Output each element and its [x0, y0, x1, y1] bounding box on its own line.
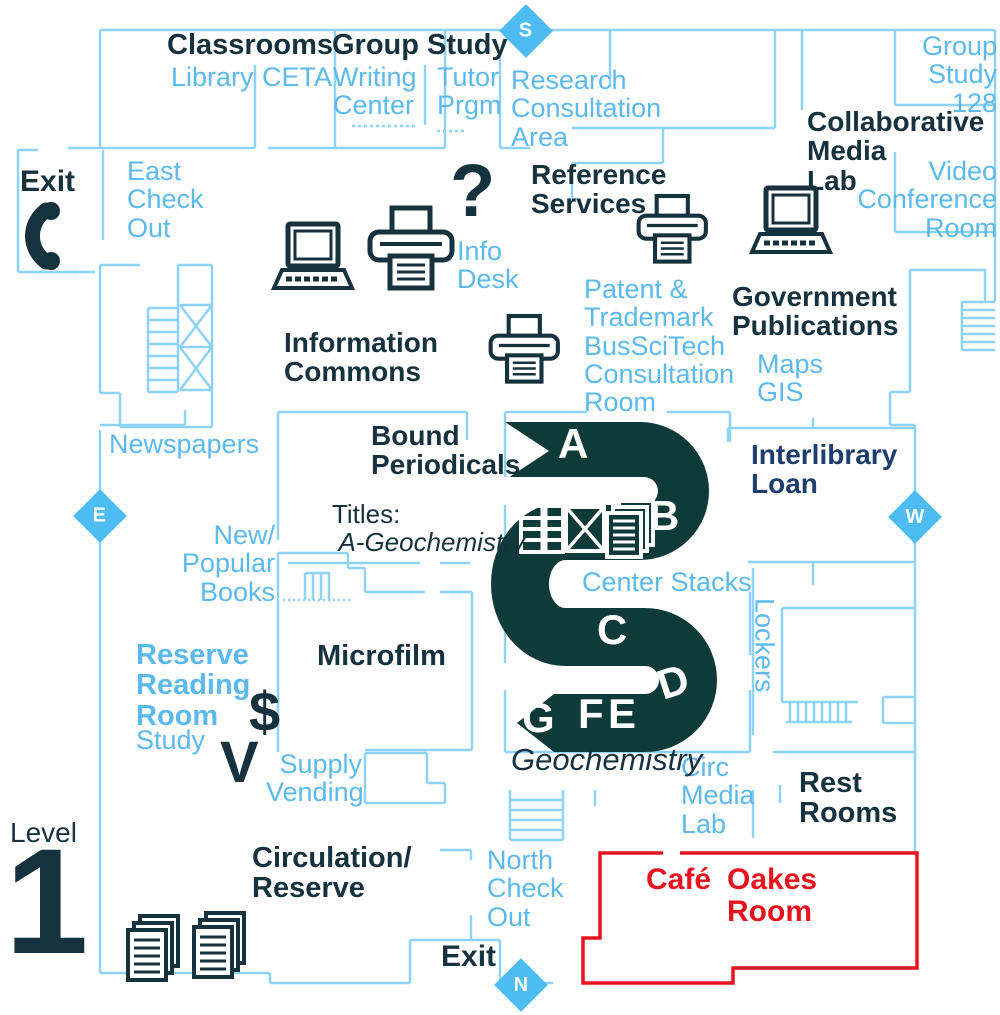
room-label-rest-rooms: RestRooms: [799, 768, 897, 829]
room-label-info-desk: InfoDesk: [457, 237, 519, 294]
room-label-center-stacks: Center Stacks: [582, 568, 752, 596]
printer-icon: [491, 316, 558, 382]
library-floor-plan: S E W N Classrooms Library CETA Group St…: [0, 0, 1000, 1015]
stack-letter-g: G: [522, 694, 555, 742]
room-label-reference-services: ReferenceServices: [531, 160, 666, 219]
compass-west-label: W: [906, 505, 925, 528]
stacks-range-end: Geochemistry: [511, 744, 702, 777]
room-label-study: Study: [136, 726, 205, 754]
room-label-tutor-prgm: TutorPrgm: [437, 63, 502, 120]
stacked-papers-icon: [128, 916, 178, 980]
stack-letter-c: C: [597, 606, 627, 654]
room-label-research-consultation: ResearchConsultationArea: [511, 66, 661, 151]
room-label-maps-gis: MapsGIS: [757, 350, 823, 407]
room-label-writing-center: WritingCenter: [333, 63, 417, 120]
room-label-oakes-room: OakesRoom: [727, 864, 817, 927]
room-label-interlibrary-loan: InterlibraryLoan: [751, 440, 897, 499]
room-label-bound-periodicals: BoundPeriodicals: [371, 421, 520, 480]
level-number: 1: [5, 826, 88, 976]
room-label-video-conference: VideoConferenceRoom: [855, 157, 997, 242]
computer-icon: [274, 224, 352, 288]
room-label-classrooms: Classrooms: [167, 30, 333, 60]
compass-north-label: N: [514, 973, 528, 996]
titles-prefix: Titles:: [332, 499, 400, 529]
room-label-cafe: Café: [646, 864, 711, 896]
bound-periodicals-titles: Titles: A-Geochemistry: [318, 474, 525, 556]
room-label-government-publications: GovernmentPublications: [732, 282, 898, 341]
room-label-newspapers: Newspapers: [109, 430, 259, 458]
stack-letter-b: B: [649, 492, 679, 540]
computer-icon: [752, 188, 830, 252]
label-exit-east: Exit: [20, 166, 75, 198]
compass-south-label: S: [519, 20, 532, 43]
info-desk-question-mark: ?: [450, 152, 495, 230]
printer-icon: [370, 208, 452, 288]
room-label-reserve-reading-room: ReserveReadingRoom: [136, 640, 250, 731]
room-label-north-check-out: NorthCheckOut: [487, 846, 564, 931]
stack-letter-a: A: [558, 420, 588, 468]
stacked-papers-icon: [607, 501, 653, 557]
stacked-papers-icon: [194, 913, 244, 977]
stack-letter-e: E: [608, 690, 636, 738]
room-label-library: Library: [171, 63, 254, 91]
room-label-group-study-128: GroupStudy128: [892, 32, 997, 117]
label-exit-north: Exit: [441, 941, 496, 973]
room-label-group-study: Group Study: [332, 30, 508, 60]
phone-icon: [33, 202, 61, 270]
room-label-circulation-reserve: Circulation/Reserve: [252, 843, 412, 904]
room-label-microfilm: Microfilm: [317, 641, 446, 671]
titles-range: A-Geochemistry: [338, 527, 524, 557]
vending-symbol: V: [220, 733, 259, 794]
room-label-lockers: Lockers: [750, 598, 778, 693]
room-label-east-check-out: EastCheckOut: [127, 157, 204, 242]
room-label-supply-vending: SupplyVending: [266, 750, 362, 807]
stack-letter-f: F: [578, 690, 604, 738]
room-label-new-popular-books: New/PopularBooks: [155, 521, 275, 606]
room-label-ceta: CETA: [262, 63, 332, 91]
room-label-information-commons: InformationCommons: [284, 328, 438, 387]
compass-east-label: E: [93, 505, 106, 528]
room-label-patent-trademark: Patent &TrademarkBusSciTechConsultationR…: [584, 275, 734, 417]
